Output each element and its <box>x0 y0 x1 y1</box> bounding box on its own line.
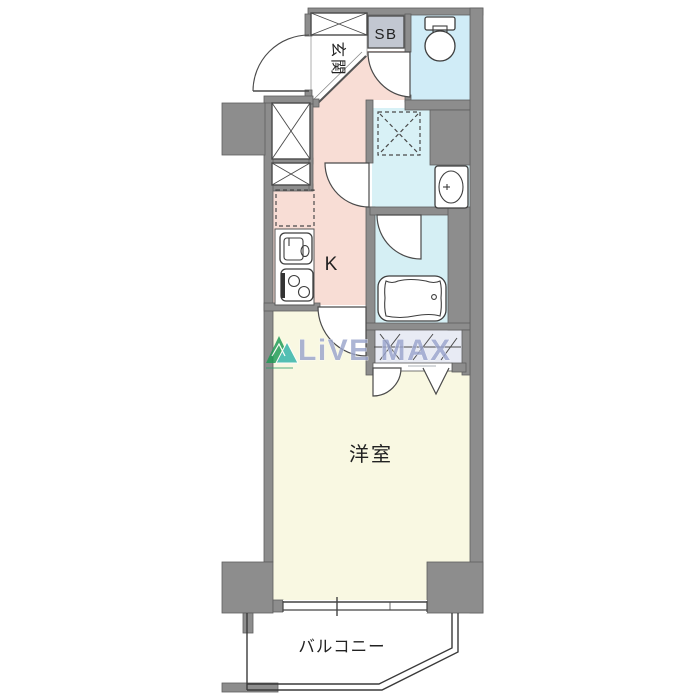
bathtub-icon <box>378 276 446 321</box>
floor-plan-svg: SB <box>0 0 700 700</box>
kitchen-counter <box>275 229 314 305</box>
gas-stove-icon <box>281 269 313 301</box>
kitchen-label: K <box>325 254 338 275</box>
kitchen-sink-icon <box>280 233 312 264</box>
watermark-text: LiVE MAX <box>298 334 452 367</box>
front-door <box>253 35 309 91</box>
western-room-label: 洋室 <box>349 443 393 466</box>
floor-plan-image: SB <box>0 0 700 700</box>
balcony-label: バルコニー <box>298 638 385 656</box>
shoebox-label: SB <box>374 26 397 43</box>
washbasin-icon <box>435 166 468 208</box>
toilet-icon <box>425 17 455 61</box>
entrance-label: 玄関 <box>329 41 347 76</box>
